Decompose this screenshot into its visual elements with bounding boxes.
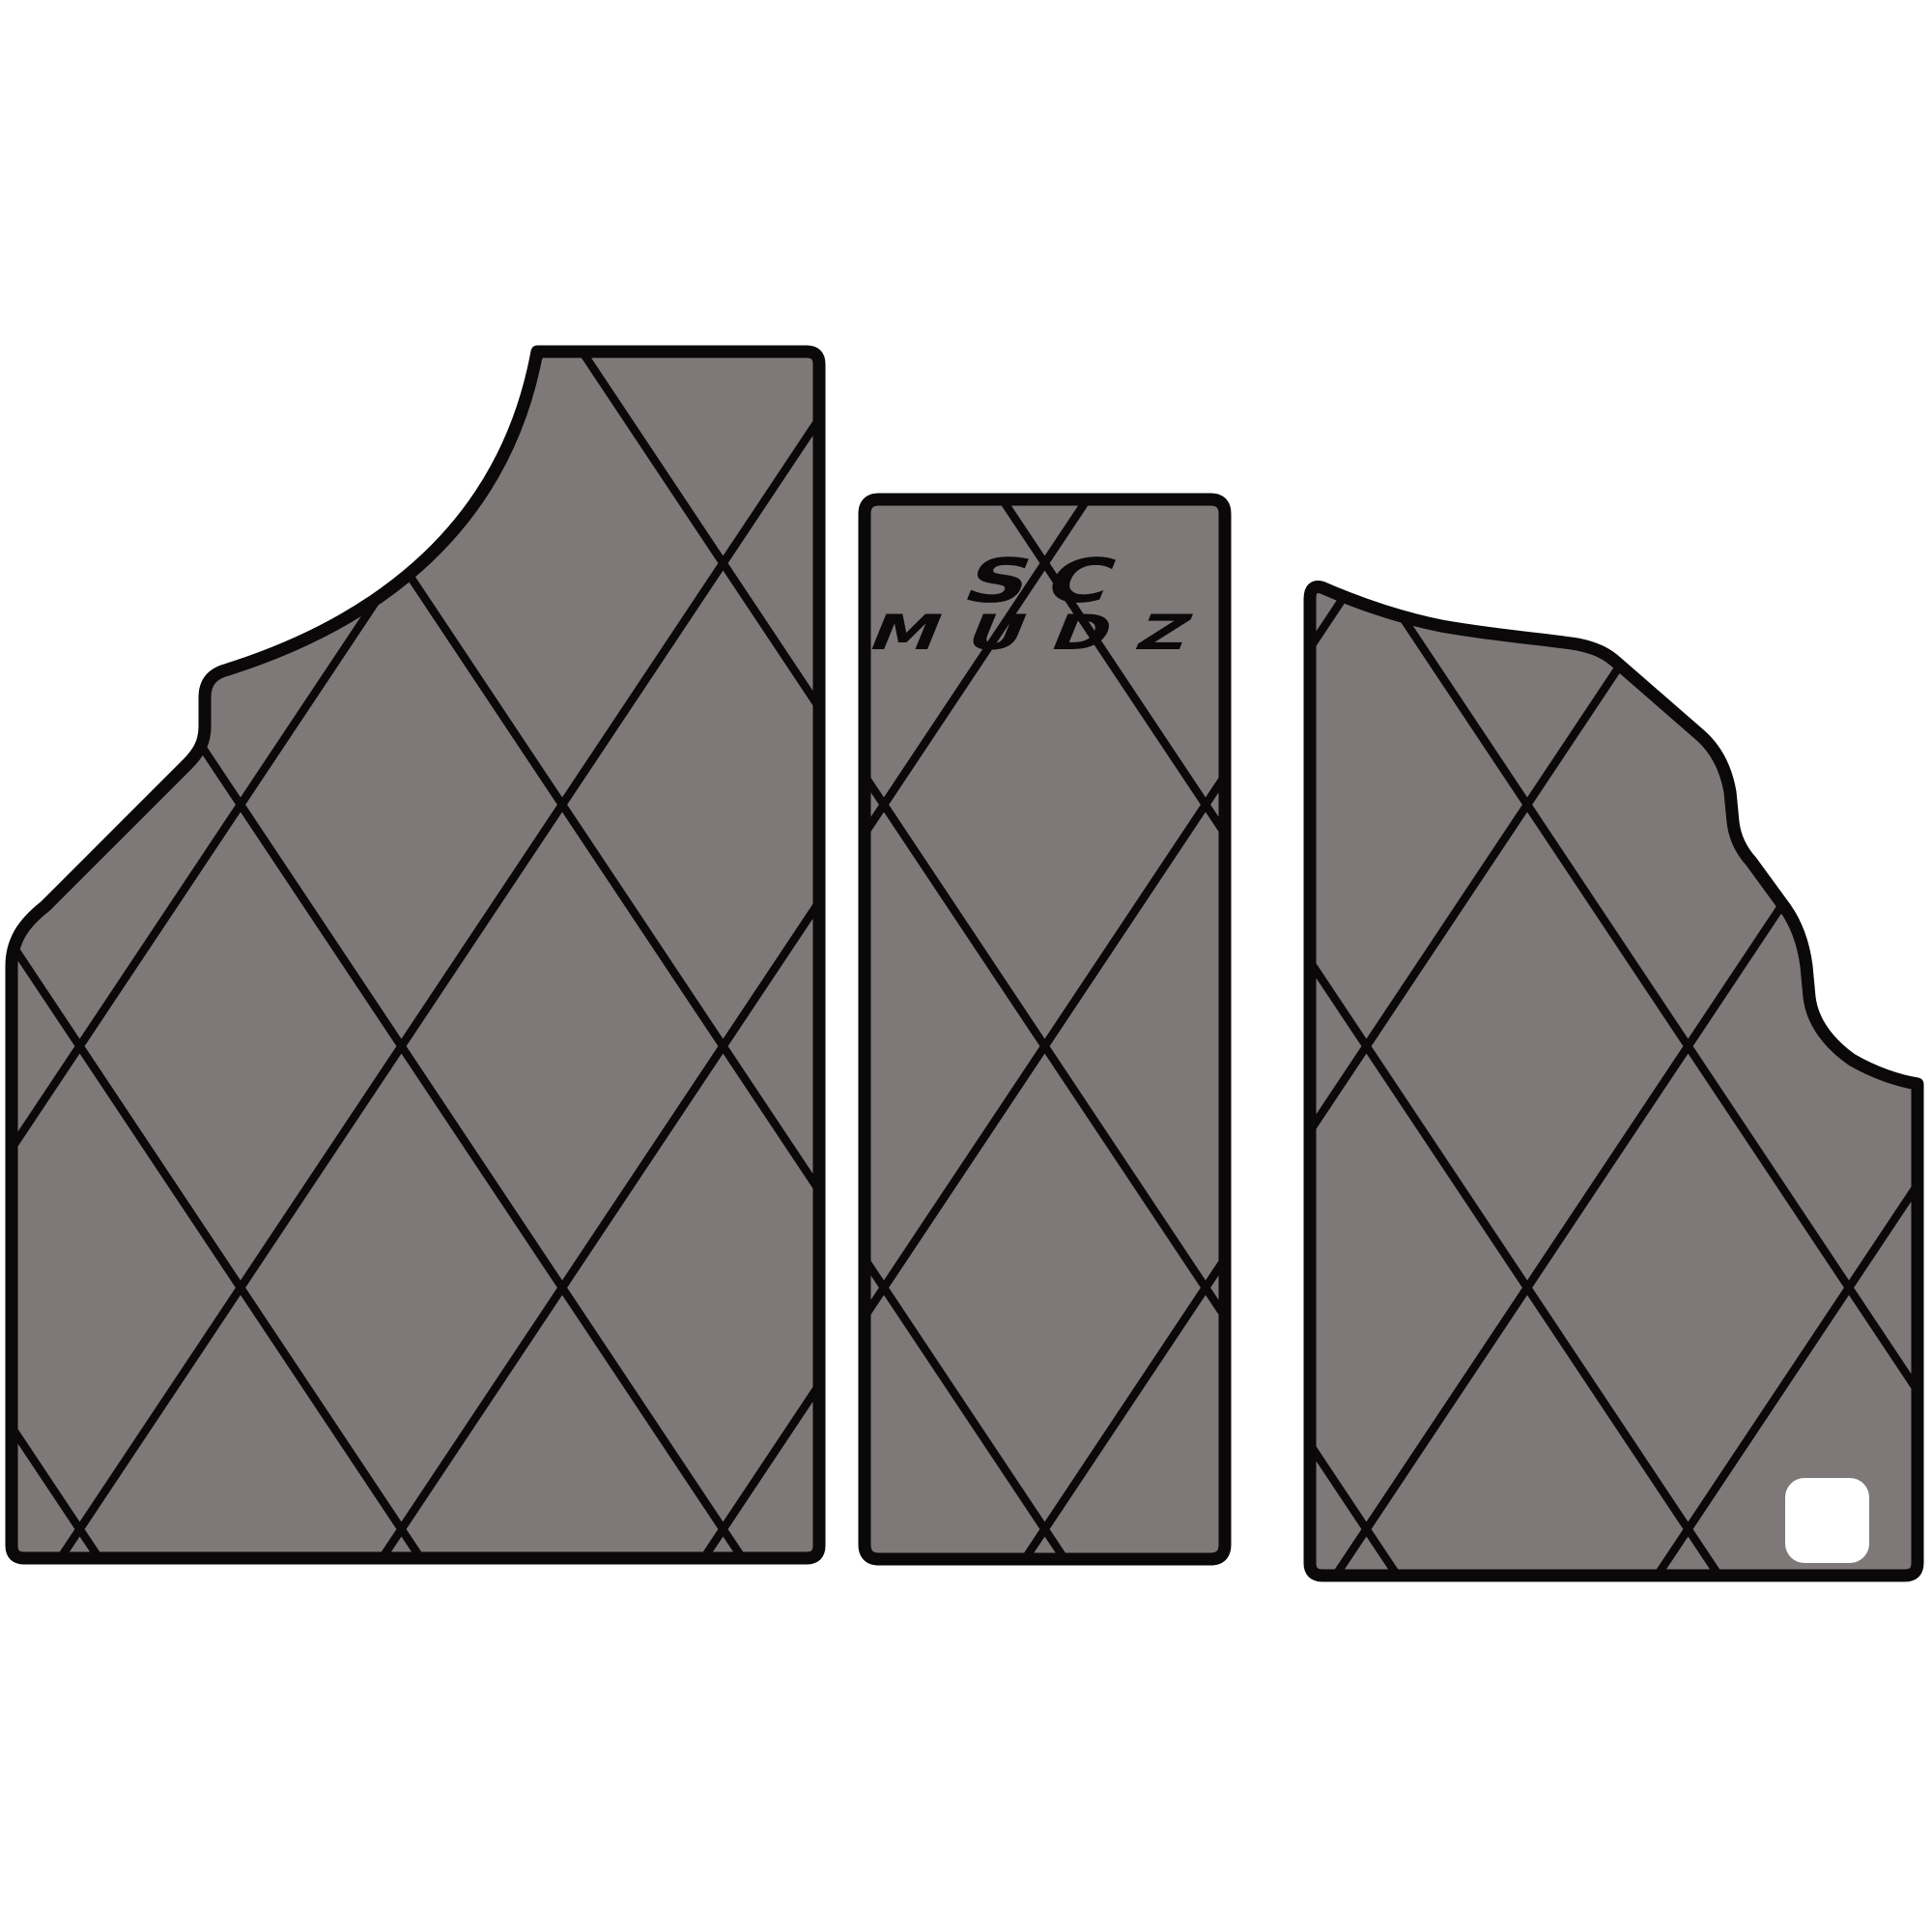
passenger-mat-shape — [1310, 587, 1918, 1577]
brand-logo-line2: MUDZ — [861, 604, 1230, 661]
corner-patch — [1785, 1478, 1869, 1563]
brand-logo-group-2: MUDZ — [861, 604, 1230, 661]
driver-mat-shape — [12, 352, 819, 1558]
floor-mat-set-image: SC MUDZ — [0, 0, 1932, 1932]
product-image-stage: SC MUDZ — [0, 0, 1932, 1932]
